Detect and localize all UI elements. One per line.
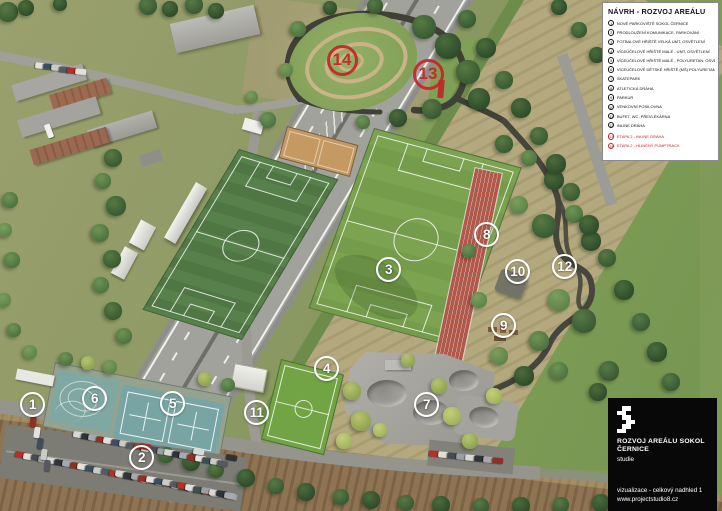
legend-item-number: 13 (608, 133, 614, 139)
legend-item-number: 11 (608, 113, 614, 119)
info-panel-caption: vizualizace - celkový nadhled 1 www.proj… (617, 486, 710, 505)
legend-item-label: ETAPA 2 - HLINĚNÝ PUMPTRACK (617, 143, 680, 148)
site-plan-render: 1234567891011121314 NÁVRH - ROZVOJ AREÁL… (0, 0, 722, 511)
legend-item-number: 8 (608, 85, 614, 91)
legend-item: 11BUFET, WC, PŘEVLÉKÁRNA (608, 113, 715, 119)
map-marker-9: 9 (491, 313, 516, 338)
legend-item: 2PRODLOUŽENÍ KOMUNIKACE, PARKOVÁNÍ (608, 29, 715, 35)
legend-item: 10VENKOVNÍ POSILOVNA (608, 104, 715, 110)
legend-title: NÁVRH - ROZVOJ AREÁLU (608, 7, 715, 16)
info-panel: ROZVOJ AREÁLU SOKOL ČERNICE studie vizua… (608, 398, 717, 511)
legend-item-number: 6 (608, 66, 614, 72)
legend-item: 13ETAPA 2 - INLINE DRÁHA (608, 133, 715, 139)
legend-item: 7SKATEPARK (608, 76, 715, 82)
legend-item: 5VÍCEÚČELOVÉ HŘIŠTĚ MALÉ - POLYURETAN, O… (608, 57, 715, 63)
legend-item-number: 4 (608, 48, 614, 54)
legend-item-number: 3 (608, 39, 614, 45)
legend-item-number: 14 (608, 143, 614, 149)
legend-item: 9PARKUR (608, 94, 715, 100)
legend-item-number: 10 (608, 104, 614, 110)
legend-item-label: INLINE DRÁHA (617, 123, 645, 128)
map-marker-6: 6 (82, 386, 107, 411)
legend-item-number: 9 (608, 94, 614, 100)
legend-item-number: 5 (608, 57, 614, 63)
legend-item-label: PARKUR (617, 95, 633, 100)
legend-item: 1NOVÉ PARKOVIŠTĚ SOKOL ČERNICE (608, 20, 715, 26)
map-marker-5: 5 (160, 391, 185, 416)
legend-item: 8ATLETICKÁ DRÁHA (608, 85, 715, 91)
legend-item: 14ETAPA 2 - HLINĚNÝ PUMPTRACK (608, 143, 715, 149)
map-marker-7: 7 (414, 392, 439, 417)
caption-line-1: vizualizace - celkový nadhled 1 (617, 486, 710, 496)
legend-item-label: VÍCEÚČELOVÉ HŘIŠTĚ MALÉ - POLYURETAN, OS… (617, 58, 715, 63)
legend-item-label: VENKOVNÍ POSILOVNA (617, 104, 662, 109)
map-marker-14: 14 (327, 45, 358, 76)
legend-item: 12INLINE DRÁHA (608, 122, 715, 128)
legend-item-label: VÍCEÚČELOVÉ DĚTSKÉ HŘIŠTĚ (MŠ) POLYURETA… (617, 67, 715, 72)
info-panel-title: ROZVOJ AREÁLU SOKOL ČERNICE (617, 438, 710, 455)
map-marker-4: 4 (314, 356, 339, 381)
map-marker-13: 13 (413, 59, 444, 90)
legend-item-label: NOVÉ PARKOVIŠTĚ SOKOL ČERNICE (617, 21, 689, 26)
map-marker-3: 3 (376, 257, 401, 282)
info-panel-subtitle: studie (617, 456, 710, 463)
map-marker-11: 11 (244, 400, 269, 425)
map-marker-1: 1 (20, 392, 45, 417)
map-marker-8: 8 (474, 222, 499, 247)
legend-item-label: PRODLOUŽENÍ KOMUNIKACE, PARKOVÁNÍ (617, 30, 699, 35)
caption-line-2: www.projectstudio8.cz (617, 495, 710, 505)
projectstudio8-logo (617, 406, 710, 433)
map-marker-2: 2 (129, 445, 154, 470)
legend-item-label: ETAPA 2 - INLINE DRÁHA (617, 134, 664, 139)
legend-item-label: ATLETICKÁ DRÁHA (617, 86, 654, 91)
legend-item: 6VÍCEÚČELOVÉ DĚTSKÉ HŘIŠTĚ (MŠ) POLYURET… (608, 66, 715, 72)
legend-item: 4VÍCEÚČELOVÉ HŘIŠTĚ MALÉ - UMT, OSVĚTLEN… (608, 48, 715, 54)
legend-item-number: 7 (608, 76, 614, 82)
legend-item-label: SKATEPARK (617, 76, 640, 81)
legend-item-label: VÍCEÚČELOVÉ HŘIŠTĚ MALÉ - UMT, OSVĚTLENÍ (617, 49, 710, 54)
map-marker-10: 10 (505, 259, 530, 284)
legend-item-number: 1 (608, 20, 614, 26)
legend-item-label: FOTBALOVÉ HŘIŠTĚ VELKÁ UMT, OSVĚTLENÍ (617, 39, 705, 44)
legend-panel: NÁVRH - ROZVOJ AREÁLU 1NOVÉ PARKOVIŠTĚ S… (602, 2, 719, 161)
legend-items: 1NOVÉ PARKOVIŠTĚ SOKOL ČERNICE2PRODLOUŽE… (608, 20, 715, 149)
legend-item-number: 12 (608, 122, 614, 128)
map-marker-12: 12 (552, 254, 577, 279)
legend-item: 3FOTBALOVÉ HŘIŠTĚ VELKÁ UMT, OSVĚTLENÍ (608, 39, 715, 45)
legend-item-number: 2 (608, 29, 614, 35)
legend-item-label: BUFET, WC, PŘEVLÉKÁRNA (617, 114, 670, 119)
